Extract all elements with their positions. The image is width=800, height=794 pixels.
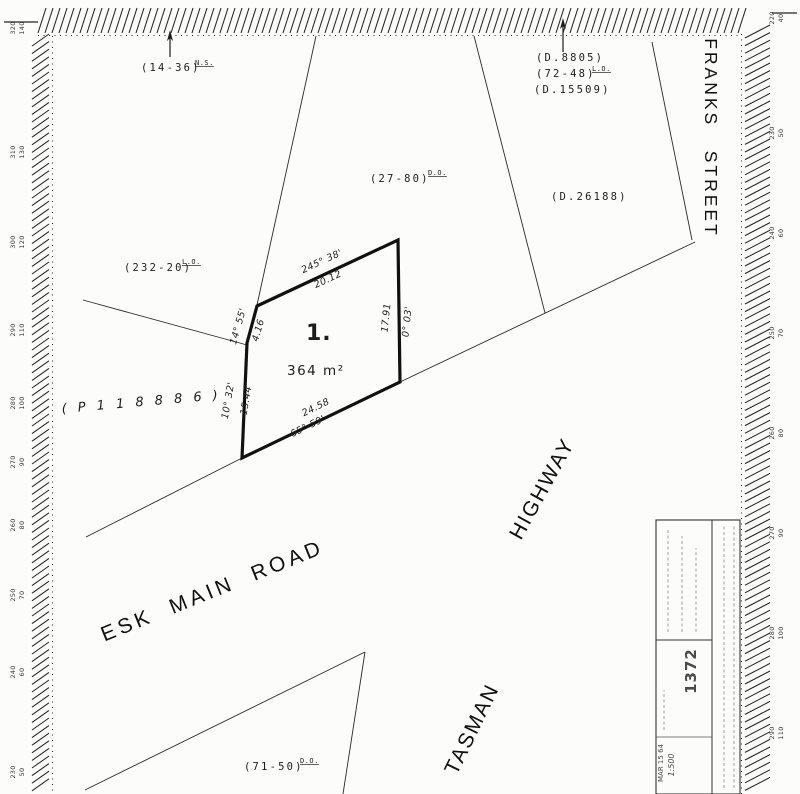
label-ref-72-48: (72-48) (536, 68, 596, 80)
hatch-tick (32, 695, 49, 707)
hatch-tick (32, 406, 49, 418)
hatch-tick (745, 451, 770, 464)
hatch-tick (32, 171, 49, 183)
hatch-tick (339, 8, 347, 33)
hatch-tick (52, 8, 60, 33)
road-boundary-line (400, 242, 695, 382)
hatch-tick (32, 437, 49, 449)
hatch-tick (745, 496, 770, 509)
hatch-tick (409, 8, 417, 33)
hatch-tick (32, 657, 49, 669)
label-ref-72-48-sup: L.O. (592, 65, 611, 73)
hatch-tick (32, 224, 49, 236)
hatch-tick (32, 718, 49, 730)
hatch-tick (32, 368, 49, 380)
hatch-tick (745, 162, 770, 175)
hatch-tick (32, 414, 49, 426)
hatch-tick (647, 8, 655, 33)
hatch-tick (626, 8, 634, 33)
hatch-tick (745, 131, 770, 144)
hatch-tick (745, 481, 770, 494)
hatch-tick (745, 359, 770, 372)
hatch-tick (598, 8, 606, 33)
hatch-tick (584, 8, 592, 33)
label-ref-14-36-sup: N.S. (195, 59, 214, 67)
hatch-tick (32, 460, 49, 472)
hatch-tick (682, 8, 690, 33)
hatch-tick (318, 8, 326, 33)
hatch-tick (745, 656, 770, 669)
hatch-tick (745, 542, 770, 555)
hatch-tick (32, 95, 49, 107)
hatch-tick (745, 200, 770, 213)
hatch-tick (745, 253, 770, 266)
border-scale-label: 40 (777, 14, 785, 23)
hatch-tick (738, 8, 746, 33)
hatch-tick (32, 467, 49, 479)
border-scale-label: 310 (9, 145, 17, 158)
hatch-tick (745, 694, 770, 707)
hatch-tick (332, 8, 340, 33)
hatch-tick (227, 8, 235, 33)
hatch-tick (745, 701, 770, 714)
hatch-tick (108, 8, 116, 33)
hatch-tick (32, 110, 49, 122)
street-esk-main-road: ESK MAIN ROAD (98, 536, 328, 647)
border-scale-left: 320 140 310 130 300 120 290 110 280 100 … (9, 21, 26, 778)
hatch-tick (493, 8, 501, 33)
hatch-tick (745, 78, 770, 91)
label-ref-27-80: (27-80) (370, 173, 430, 185)
hatch-tick (605, 8, 613, 33)
hatch-tick (745, 40, 770, 53)
border-scale-label: 80 (18, 521, 26, 530)
hatch-tick (745, 154, 770, 167)
hatch-tick (32, 72, 49, 84)
hatch-tick (703, 8, 711, 33)
hatch-tick (745, 299, 770, 312)
label-ref-d26188: (D.26188) (551, 191, 628, 203)
border-scale-label: 260 (9, 518, 17, 531)
hatch-tick (521, 8, 529, 33)
hatch-tick (32, 444, 49, 456)
hatch-tick (745, 169, 770, 182)
hatch-tick (32, 764, 49, 776)
hatch-tick (360, 8, 368, 33)
hatch-tick (32, 42, 49, 54)
border-scale-label: 50 (777, 129, 785, 138)
hatch-tick (731, 8, 739, 33)
hatch-tick (32, 346, 49, 358)
hatch-tick (32, 156, 49, 168)
hatch-tick (479, 8, 487, 33)
hatch-tick (745, 382, 770, 395)
hatch-tick (32, 391, 49, 403)
label-ref-27-80-sup: D.O. (428, 169, 447, 177)
hatch-tick (32, 118, 49, 130)
hatch-tick (745, 268, 770, 281)
hatch-tick (745, 390, 770, 403)
hatch-tick (32, 543, 49, 555)
street-tasman-highway-word1: TASMAN (440, 680, 504, 778)
border-scale-label: 130 (18, 145, 26, 158)
border-scale-label: 230 (9, 765, 17, 778)
hatch-tick (745, 732, 770, 745)
hatch-tick (241, 8, 249, 33)
dim-left-lower-length: 15.44 (239, 385, 255, 416)
border-scale-label: 70 (18, 591, 26, 600)
hatch-tick (745, 238, 770, 251)
hatch-tick (32, 490, 49, 502)
hatch-tick (430, 8, 438, 33)
hatch-tick (346, 8, 354, 33)
hatch-tick (297, 8, 305, 33)
hatch-tick (32, 148, 49, 160)
hatch-tick (32, 779, 49, 791)
hatch-tick (724, 8, 732, 33)
hatch-tick (745, 595, 770, 608)
hatch-tick (255, 8, 263, 33)
parcel-number: 1. (306, 321, 332, 346)
hatch-tick (150, 8, 158, 33)
border-scale-label: 100 (18, 396, 26, 409)
hatch-tick (745, 276, 770, 289)
hatch-tick (745, 413, 770, 426)
hatch-tick (32, 452, 49, 464)
hatch-tick (535, 8, 543, 33)
hatch-tick (745, 603, 770, 616)
hatch-tick (32, 361, 49, 373)
hatch-tick (32, 756, 49, 768)
border-scale-label: 230 (768, 126, 776, 139)
dim-left-lower-bearing: 10° 32' (220, 381, 237, 420)
hatch-tick (745, 762, 770, 775)
hatch-tick (269, 8, 277, 33)
hatch-tick (32, 125, 49, 137)
hatch-tick (164, 8, 172, 33)
border-scale-label: 90 (18, 458, 26, 467)
border-scale-label: 290 (768, 726, 776, 739)
border-scale-label: 300 (9, 235, 17, 248)
hatch-tick (32, 665, 49, 677)
border-scale-label: 280 (9, 396, 17, 409)
hatch-tick (32, 270, 49, 282)
hatch-tick (745, 63, 770, 76)
hatch-tick (381, 8, 389, 33)
hatch-tick (94, 8, 102, 33)
hatch-tick (507, 8, 515, 33)
hatch-tick (745, 93, 770, 106)
hatch-tick (32, 330, 49, 342)
hatch-tick (542, 8, 550, 33)
hatch-tick (745, 443, 770, 456)
hatch-tick (528, 8, 536, 33)
hatch-tick (745, 344, 770, 357)
hatch-tick (45, 8, 53, 33)
hatch-tick (745, 230, 770, 243)
hatch-tick (745, 739, 770, 752)
hatch-tick (32, 604, 49, 616)
hatch-tick (745, 329, 770, 342)
hatch-tick (59, 8, 67, 33)
hatch-tick (32, 194, 49, 206)
hatch-tick (745, 367, 770, 380)
hatch-tick (745, 466, 770, 479)
hatch-tick (745, 86, 770, 99)
hatch-tick (612, 8, 620, 33)
road-boundary-line (86, 458, 242, 537)
hatch-tick (32, 300, 49, 312)
hatch-tick (717, 8, 725, 33)
hatch-tick (745, 511, 770, 524)
hatch-tick (311, 8, 319, 33)
hatch-tick (549, 8, 557, 33)
border-scale-label: 220 (768, 11, 776, 24)
hatch-tick (32, 619, 49, 631)
hatch-tick (486, 8, 494, 33)
label-ref-14-36: (14-36) (141, 62, 201, 74)
border-scale-label: 270 (768, 526, 776, 539)
hatch-tick (745, 527, 770, 540)
hatch-tick (416, 8, 424, 33)
hatch-tick (745, 610, 770, 623)
hatch-tick (32, 57, 49, 69)
hatch-tick (745, 314, 770, 327)
hatch-tick (32, 520, 49, 532)
border-scale-label: 90 (777, 529, 785, 538)
hatch-tick (32, 163, 49, 175)
border-scale-label: 110 (777, 726, 785, 739)
border-hatch-top (38, 8, 746, 33)
hatch-tick (353, 8, 361, 33)
hatch-tick (80, 8, 88, 33)
border-scale-right: 220 40 230 50 240 60 250 70 260 80 270 9… (768, 11, 785, 739)
hatch-tick (290, 8, 298, 33)
hatch-tick (262, 8, 270, 33)
dim-right-length: 17.91 (380, 303, 394, 333)
hatch-tick (367, 8, 375, 33)
hatch-tick (514, 8, 522, 33)
hatch-tick (32, 277, 49, 289)
hatch-tick (745, 223, 770, 236)
hatch-tick (451, 8, 459, 33)
hatch-tick (745, 587, 770, 600)
border-scale-label: 110 (18, 323, 26, 336)
hatch-tick (745, 557, 770, 570)
hatch-tick (745, 207, 770, 220)
hatch-tick (32, 726, 49, 738)
reference-arrows (167, 18, 566, 57)
hatch-tick (745, 770, 770, 783)
hatch-tick (745, 420, 770, 433)
hatch-tick (32, 34, 49, 46)
hatch-tick (32, 376, 49, 388)
hatch-tick (745, 549, 770, 562)
hatch-tick (444, 8, 452, 33)
hatch-tick (745, 717, 770, 730)
hatch-tick (220, 8, 228, 33)
hatch-tick (32, 581, 49, 593)
hatch-tick (32, 741, 49, 753)
hatch-tick (661, 8, 669, 33)
hatch-tick (115, 8, 123, 33)
hatch-tick (136, 8, 144, 33)
hatch-tick (570, 8, 578, 33)
hatch-tick (101, 8, 109, 33)
boundary-line (85, 652, 365, 790)
hatch-tick (500, 8, 508, 33)
hatch-tick (32, 178, 49, 190)
hatch-tick (206, 8, 214, 33)
hatch-tick (32, 49, 49, 61)
hatch-tick (32, 498, 49, 510)
hatch-tick (32, 703, 49, 715)
border-scale-label: 120 (18, 235, 26, 248)
hatch-tick (32, 308, 49, 320)
hatch-tick (388, 8, 396, 33)
hatch-tick (248, 8, 256, 33)
survey-plan-page: 320 140 310 130 300 120 290 110 280 100 … (0, 0, 800, 794)
hatch-tick (129, 8, 137, 33)
dim-left-upper-bearing: 14° 55' (228, 307, 249, 346)
hatch-tick (745, 435, 770, 448)
hatch-tick (32, 209, 49, 221)
hatch-tick (745, 33, 770, 46)
hatch-tick (32, 285, 49, 297)
hatch-tick (32, 650, 49, 662)
hatch-tick (32, 688, 49, 700)
boundary-line (83, 300, 247, 345)
hatch-tick (32, 596, 49, 608)
hatch-tick (32, 247, 49, 259)
hatch-tick (234, 8, 242, 33)
hatch-tick (32, 672, 49, 684)
border-scale-label: 320 (9, 21, 17, 34)
hatch-tick (87, 8, 95, 33)
hatch-tick (591, 8, 599, 33)
dim-right-bearing: 0° 03' (400, 306, 414, 338)
hatch-tick (32, 627, 49, 639)
border-scale-label: 60 (777, 229, 785, 238)
hatch-tick (32, 482, 49, 494)
hatch-tick (745, 686, 770, 699)
hatch-tick (745, 352, 770, 365)
hatch-tick (675, 8, 683, 33)
hatch-tick (745, 534, 770, 547)
hatch-tick (745, 71, 770, 84)
hatch-tick (276, 8, 284, 33)
boundary-line (343, 652, 365, 794)
label-ref-232-20-sup: L.O. (182, 258, 201, 266)
hatch-tick (185, 8, 193, 33)
hatch-tick (32, 771, 49, 783)
hatch-tick (563, 8, 571, 33)
label-ref-71-50: (71-50) (244, 761, 304, 773)
hatch-tick (619, 8, 627, 33)
hatch-tick (32, 528, 49, 540)
hatch-tick (32, 323, 49, 335)
hatch-tick (32, 239, 49, 251)
hatch-tick (577, 8, 585, 33)
hatch-tick (32, 292, 49, 304)
hatch-tick (32, 536, 49, 548)
hatch-tick (32, 399, 49, 411)
hatch-tick (745, 283, 770, 296)
title-block-date-stamp: MAR 15 64 (657, 743, 665, 782)
border-scale-label: 60 (18, 668, 26, 677)
hatch-tick (745, 215, 770, 228)
hatch-tick (304, 8, 312, 33)
title-block-scale: 1:500 (667, 753, 676, 776)
hatch-tick (171, 8, 179, 33)
hatch-tick (32, 589, 49, 601)
hatch-tick (283, 8, 291, 33)
border-scale-label: 240 (9, 665, 17, 678)
title-references: (14-36) N.S. (D.8805) (72-48) L.O. (D.15… (61, 52, 628, 773)
hatch-tick (32, 338, 49, 350)
border-hatch-right (745, 25, 770, 790)
hatch-tick (745, 375, 770, 388)
hatch-tick (745, 261, 770, 274)
border-scale-label: 250 (768, 326, 776, 339)
hatch-tick (199, 8, 207, 33)
hatch-tick (213, 8, 221, 33)
hatch-tick (745, 473, 770, 486)
hatch-tick (38, 8, 46, 33)
hatch-tick (32, 232, 49, 244)
hatch-tick (192, 8, 200, 33)
hatch-tick (745, 747, 770, 760)
hatch-tick (32, 102, 49, 114)
border-scale-label: 70 (777, 329, 785, 338)
hatch-tick (32, 216, 49, 228)
hatch-tick (710, 8, 718, 33)
label-ref-71-50-sup: D.O. (300, 757, 319, 765)
hatch-tick (32, 634, 49, 646)
hatch-tick (745, 709, 770, 722)
street-boundary-line (474, 36, 545, 313)
hatch-tick (32, 133, 49, 145)
hatch-tick (745, 489, 770, 502)
hatch-tick (32, 475, 49, 487)
hatch-tick (745, 679, 770, 692)
hatch-tick (745, 755, 770, 768)
hatch-tick (745, 663, 770, 676)
boundary-lines (83, 36, 695, 794)
hatch-tick (640, 8, 648, 33)
hatch-tick (157, 8, 165, 33)
parcel-area: 364 m² (287, 363, 345, 379)
hatch-tick (472, 8, 480, 33)
hatch-tick (32, 315, 49, 327)
hatch-tick (745, 633, 770, 646)
border-scale-label: 260 (768, 426, 776, 439)
hatch-tick (437, 8, 445, 33)
hatch-tick (745, 306, 770, 319)
hatch-tick (32, 748, 49, 760)
hatch-tick (745, 428, 770, 441)
hatch-tick (32, 513, 49, 525)
hatch-tick (402, 8, 410, 33)
hatch-tick (32, 422, 49, 434)
hatch-tick (32, 551, 49, 563)
border-scale-label: 270 (9, 455, 17, 468)
hatch-tick (745, 580, 770, 593)
street-tasman-highway-word2: HIGHWAY (505, 434, 579, 543)
hatch-tick (745, 397, 770, 410)
hatch-tick (73, 8, 81, 33)
hatch-tick (178, 8, 186, 33)
